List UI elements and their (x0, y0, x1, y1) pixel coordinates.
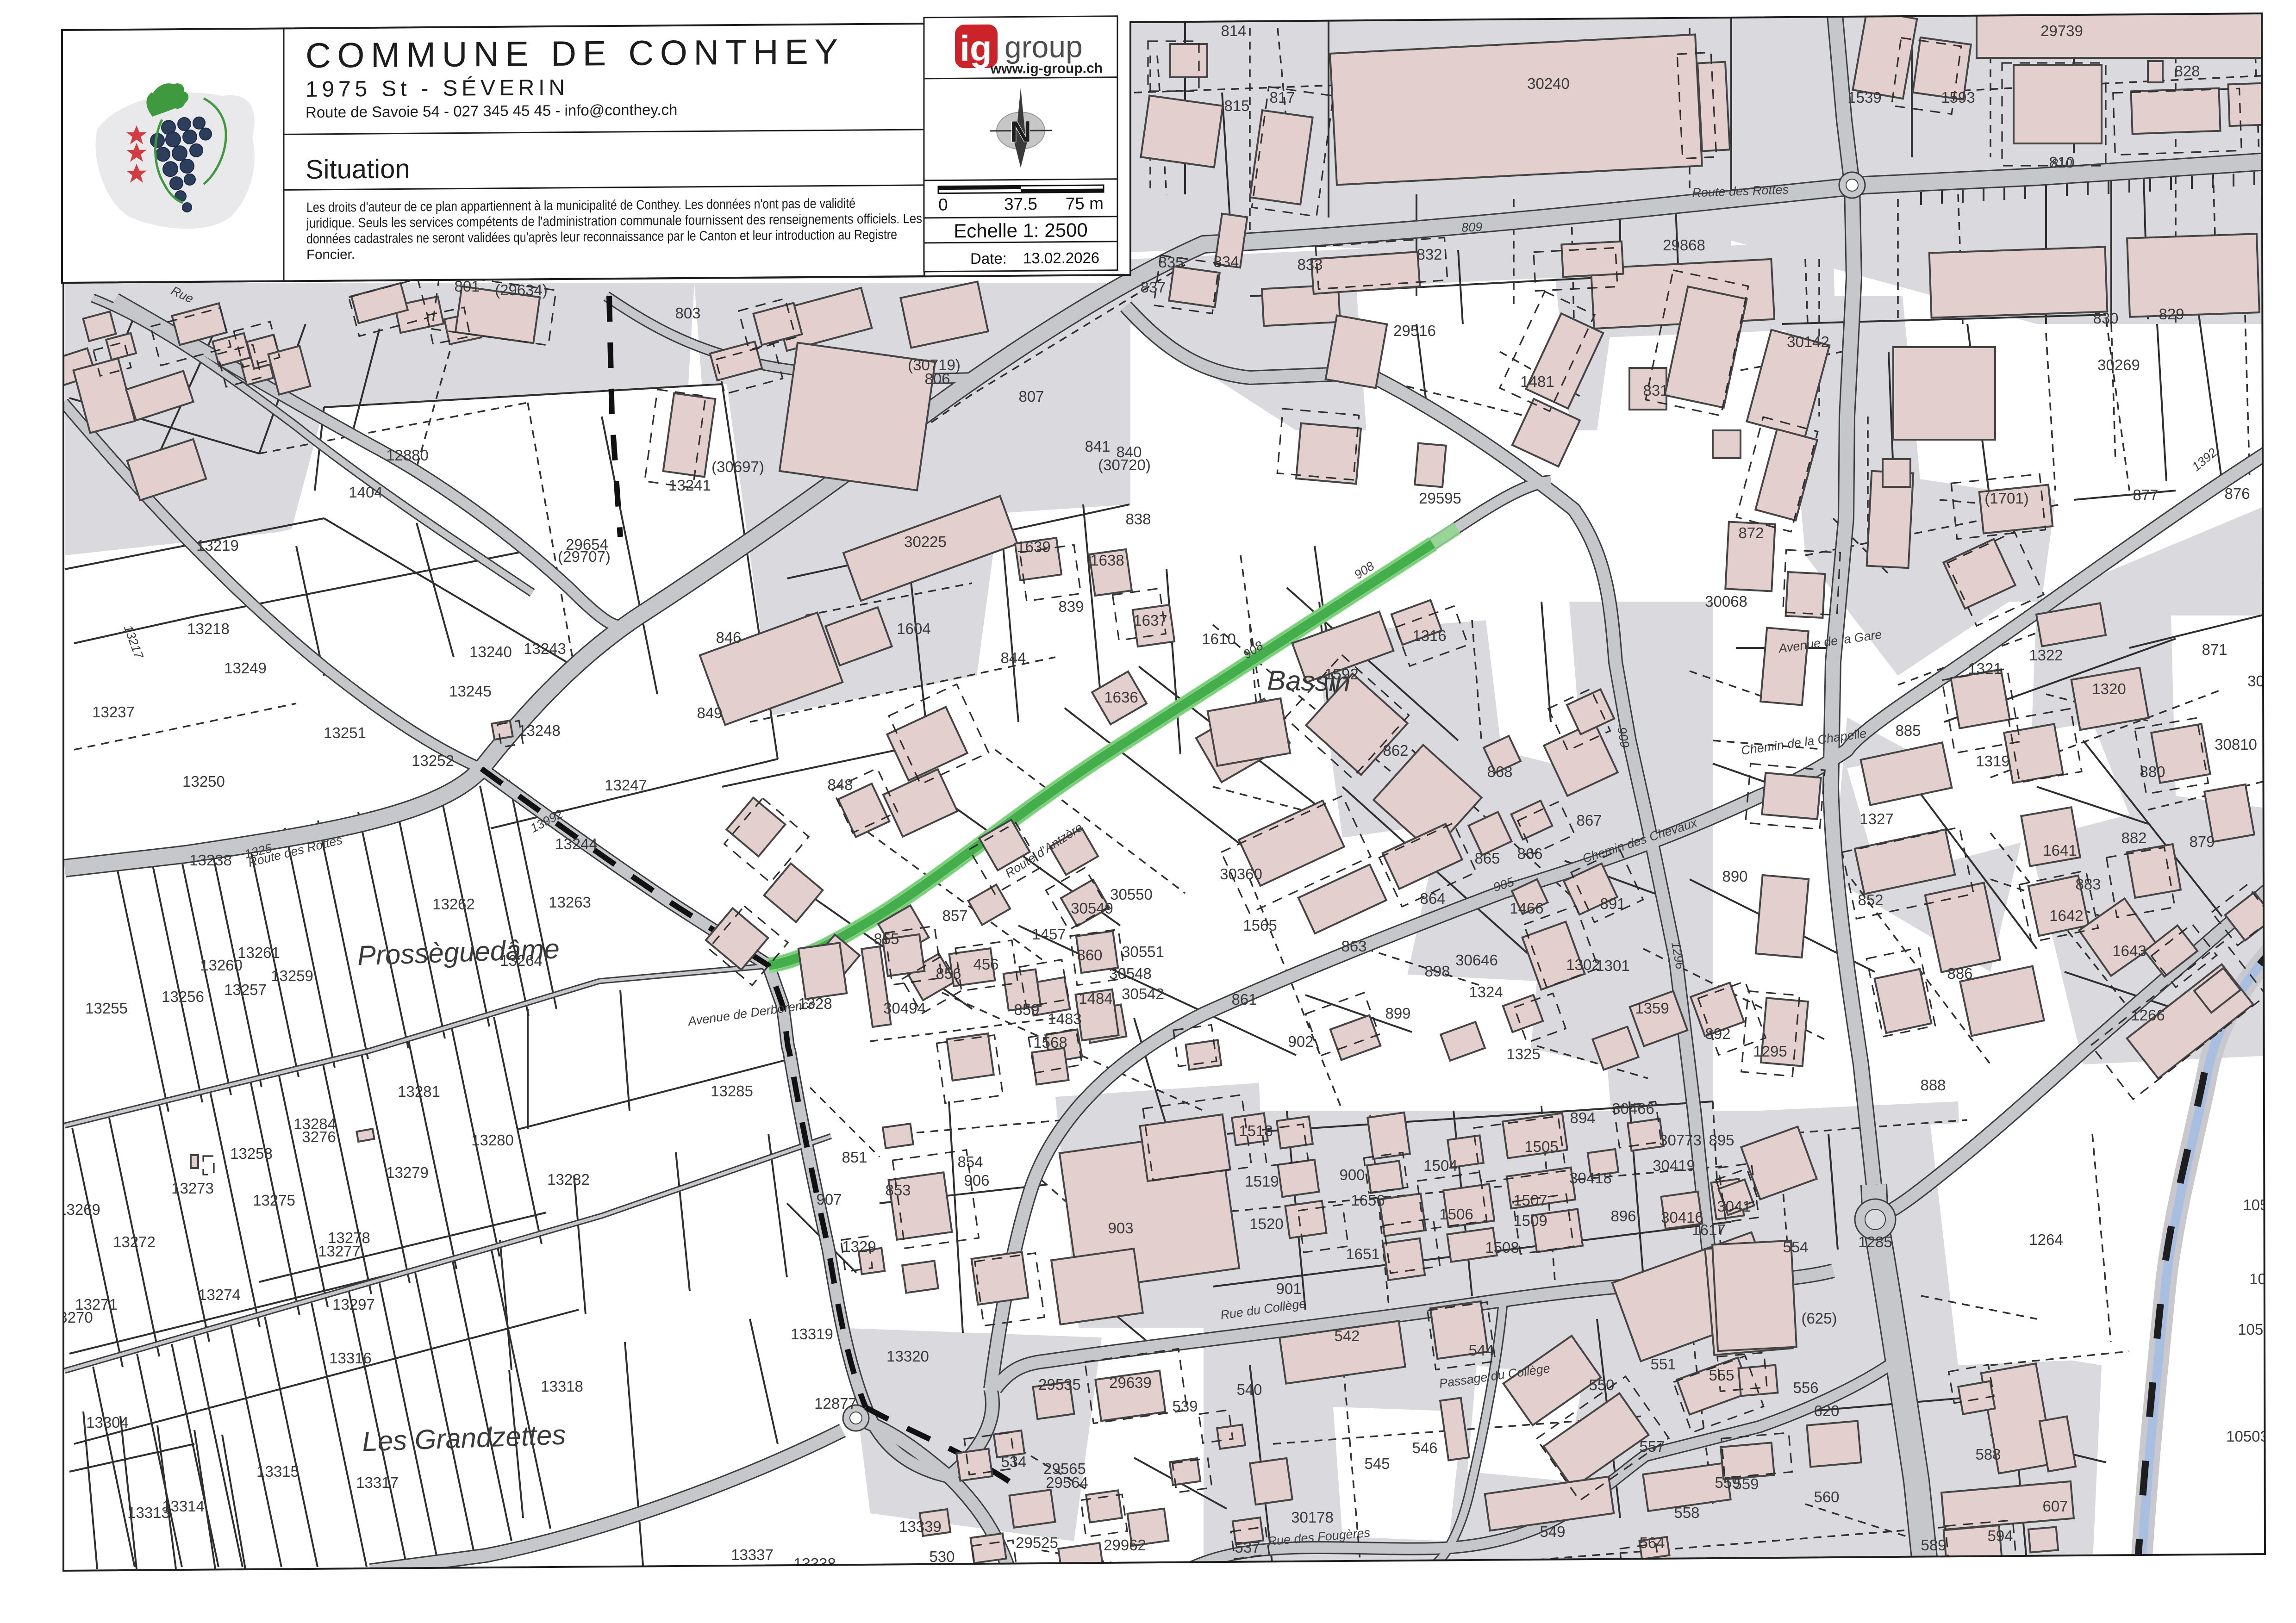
svg-text:13339: 13339 (899, 1518, 942, 1535)
svg-text:1325: 1325 (1506, 1045, 1540, 1063)
svg-text:30542: 30542 (1122, 985, 1164, 1002)
svg-text:857: 857 (942, 907, 967, 924)
svg-text:1324: 1324 (1469, 983, 1503, 1001)
svg-text:892: 892 (1705, 1025, 1730, 1042)
svg-text:13219: 13219 (196, 537, 239, 554)
svg-text:29564: 29564 (1046, 1474, 1088, 1491)
svg-text:30549: 30549 (1071, 900, 1113, 917)
svg-text:559: 559 (1733, 1475, 1759, 1492)
svg-text:29525: 29525 (1016, 1534, 1058, 1551)
svg-text:13263: 13263 (549, 894, 591, 911)
svg-text:867: 867 (1576, 812, 1602, 829)
svg-text:1321: 1321 (1968, 660, 2002, 677)
svg-text:29739: 29739 (2040, 22, 2083, 39)
svg-text:861: 861 (1231, 991, 1257, 1008)
svg-text:1641: 1641 (2043, 842, 2077, 859)
svg-text:1319: 1319 (1976, 752, 2009, 770)
svg-text:13320: 13320 (886, 1348, 929, 1365)
svg-text:13281: 13281 (398, 1083, 440, 1100)
svg-text:13282: 13282 (547, 1171, 590, 1188)
svg-text:838: 838 (1125, 510, 1151, 528)
svg-text:1518: 1518 (1239, 1122, 1273, 1139)
svg-text:1483: 1483 (1048, 1010, 1081, 1027)
svg-text:30550: 30550 (1110, 886, 1153, 903)
svg-text:13241: 13241 (668, 477, 711, 494)
svg-text:1610: 1610 (1202, 630, 1235, 647)
svg-text:Situation: Situation (306, 154, 410, 185)
svg-text:859: 859 (1014, 1001, 1039, 1018)
svg-text:817: 817 (1269, 89, 1295, 106)
svg-text:29535: 29535 (1038, 1376, 1081, 1393)
svg-text:29962: 29962 (1104, 1536, 1146, 1554)
svg-text:13280: 13280 (471, 1132, 514, 1149)
svg-text:(29634): (29634) (495, 281, 548, 298)
svg-text:530: 530 (929, 1548, 955, 1565)
svg-text:546: 546 (1412, 1439, 1437, 1456)
svg-text:902: 902 (1288, 1033, 1313, 1050)
svg-text:3276: 3276 (302, 1128, 336, 1145)
svg-text:545: 545 (1364, 1455, 1390, 1472)
svg-text:12880: 12880 (386, 447, 429, 464)
svg-text:30068: 30068 (1705, 593, 1747, 610)
svg-text:30646: 30646 (1455, 951, 1498, 969)
svg-text:1316: 1316 (1412, 627, 1446, 644)
svg-text:30551: 30551 (1122, 943, 1164, 960)
svg-text:1565: 1565 (1243, 917, 1277, 934)
svg-text:30360: 30360 (1220, 865, 1262, 883)
svg-text:589: 589 (1921, 1536, 1946, 1554)
svg-text:544: 544 (1468, 1342, 1494, 1359)
svg-text:1519: 1519 (1245, 1173, 1279, 1190)
svg-text:594: 594 (1987, 1527, 2013, 1544)
svg-text:828: 828 (2174, 62, 2200, 80)
svg-text:75 m: 75 m (1066, 194, 1104, 213)
svg-text:ig: ig (960, 28, 992, 69)
svg-text:882: 882 (2121, 829, 2146, 846)
svg-text:13258: 13258 (230, 1145, 273, 1162)
svg-text:854: 854 (957, 1153, 983, 1170)
svg-text:555: 555 (1709, 1367, 1734, 1384)
svg-text:549: 549 (1540, 1523, 1565, 1540)
svg-text:13243: 13243 (524, 640, 566, 657)
svg-text:810: 810 (2051, 156, 2072, 171)
svg-text:1617: 1617 (1691, 1221, 1725, 1238)
svg-text:829: 829 (2159, 305, 2184, 323)
svg-text:815: 815 (1224, 97, 1249, 114)
svg-text:837: 837 (1140, 279, 1166, 296)
svg-text:N: N (1010, 115, 1031, 148)
svg-text:890: 890 (1722, 868, 1747, 885)
svg-text:29516: 29516 (1393, 322, 1436, 339)
svg-text:1508: 1508 (1485, 1239, 1519, 1256)
svg-text:1327: 1327 (1859, 810, 1893, 827)
svg-text:564: 564 (1639, 1534, 1665, 1551)
svg-text:13218: 13218 (187, 620, 230, 637)
svg-text:863: 863 (1341, 938, 1366, 955)
svg-text:620: 620 (1814, 1402, 1839, 1419)
svg-text:1643: 1643 (2112, 942, 2146, 959)
svg-text:856: 856 (936, 965, 961, 982)
svg-text:806: 806 (924, 370, 950, 387)
svg-text:13304: 13304 (86, 1414, 129, 1431)
svg-text:13251: 13251 (324, 724, 366, 741)
svg-text:1484: 1484 (1079, 990, 1112, 1007)
svg-text:556: 556 (1793, 1379, 1818, 1396)
svg-text:877: 877 (2133, 486, 2158, 504)
svg-text:848: 848 (827, 776, 853, 793)
svg-text:1302: 1302 (1566, 956, 1600, 973)
svg-text:13279: 13279 (386, 1164, 429, 1181)
svg-text:13262: 13262 (432, 895, 475, 913)
svg-text:13255: 13255 (85, 1000, 128, 1017)
svg-text:13252: 13252 (412, 752, 454, 769)
svg-text:554: 554 (1783, 1238, 1808, 1256)
svg-text:30418: 30418 (1569, 1169, 1612, 1187)
svg-text:1285: 1285 (1858, 1233, 1892, 1250)
svg-text:(29707): (29707) (558, 548, 611, 565)
svg-text:1359: 1359 (1635, 1000, 1669, 1017)
svg-text:1320: 1320 (2092, 680, 2126, 697)
svg-text:860: 860 (1077, 946, 1102, 964)
svg-text:607: 607 (2042, 1498, 2068, 1515)
svg-text:1539: 1539 (1847, 89, 1881, 106)
svg-text:30419: 30419 (1653, 1157, 1695, 1174)
svg-text:3041: 3041 (1717, 1198, 1751, 1215)
svg-text:1404: 1404 (349, 484, 382, 501)
svg-text:809: 809 (1461, 220, 1483, 235)
svg-text:550: 550 (1589, 1376, 1614, 1393)
svg-text:885: 885 (1895, 722, 1921, 739)
svg-text:852: 852 (1858, 891, 1883, 908)
svg-text:1642: 1642 (2049, 907, 2083, 924)
svg-text:13237: 13237 (92, 703, 135, 721)
svg-text:907: 907 (816, 1191, 842, 1208)
svg-text:903: 903 (1108, 1219, 1133, 1237)
svg-text:876: 876 (2224, 485, 2250, 502)
svg-text:588: 588 (1975, 1446, 2001, 1463)
svg-text:534: 534 (1001, 1453, 1026, 1470)
svg-text:891: 891 (1600, 895, 1625, 912)
svg-text:1466: 1466 (1510, 900, 1543, 917)
svg-text:13244: 13244 (555, 835, 598, 852)
svg-text:835: 835 (1158, 254, 1184, 271)
svg-text:901: 901 (1276, 1280, 1301, 1297)
svg-text:888: 888 (1920, 1076, 1946, 1094)
svg-text:883: 883 (2075, 876, 2101, 893)
svg-text:839: 839 (1058, 598, 1084, 615)
svg-text:1295: 1295 (1753, 1043, 1787, 1060)
svg-text:853: 853 (885, 1181, 911, 1199)
svg-text:29868: 29868 (1663, 236, 1705, 254)
svg-text:13274: 13274 (198, 1286, 241, 1303)
svg-text:29639: 29639 (1109, 1374, 1152, 1391)
svg-text:832: 832 (1416, 246, 1442, 263)
svg-text:13272: 13272 (113, 1233, 156, 1250)
svg-text:456: 456 (973, 956, 998, 973)
svg-text:37.5: 37.5 (1004, 194, 1037, 214)
svg-text:851: 851 (842, 1149, 867, 1166)
svg-text:13317: 13317 (356, 1474, 399, 1491)
svg-text:13316: 13316 (329, 1349, 372, 1367)
svg-text:13.02.2026: 13.02.2026 (1023, 249, 1099, 267)
svg-text:13250: 13250 (182, 773, 225, 790)
svg-text:10503: 10503 (2226, 1428, 2269, 1445)
svg-text:542: 542 (1334, 1327, 1360, 1344)
svg-text:Echelle 1: 2500: Echelle 1: 2500 (954, 219, 1088, 242)
svg-text:13275: 13275 (253, 1192, 295, 1209)
svg-text:13285: 13285 (711, 1082, 753, 1100)
svg-text:30240: 30240 (1527, 75, 1570, 92)
svg-text:(1701): (1701) (1984, 490, 2028, 507)
svg-text:830: 830 (2093, 310, 2118, 327)
svg-text:1639: 1639 (1017, 538, 1050, 555)
svg-text:831: 831 (1643, 382, 1668, 399)
svg-text:30466: 30466 (1612, 1100, 1654, 1117)
svg-text:807: 807 (1018, 388, 1044, 405)
svg-text:1505: 1505 (1524, 1138, 1558, 1155)
svg-text:13319: 13319 (791, 1325, 833, 1343)
svg-text:13238: 13238 (189, 852, 232, 869)
svg-text:13240: 13240 (469, 643, 512, 660)
svg-text:13337: 13337 (731, 1546, 774, 1563)
svg-text:29595: 29595 (1419, 490, 1461, 507)
svg-text:1637: 1637 (1133, 612, 1167, 629)
svg-text:855: 855 (873, 930, 899, 947)
svg-text:834: 834 (1213, 253, 1239, 270)
svg-text:13260: 13260 (200, 957, 243, 974)
svg-text:Route de Savoie 54 - 027 345 4: Route de Savoie 54 - 027 345 45 45 - inf… (306, 101, 677, 121)
svg-text:1604: 1604 (897, 620, 930, 637)
svg-text:879: 879 (2189, 833, 2215, 850)
svg-text:537: 537 (1235, 1539, 1260, 1556)
svg-text:1504: 1504 (1423, 1157, 1457, 1174)
svg-text:30773: 30773 (1659, 1132, 1702, 1149)
svg-text:30810: 30810 (2215, 736, 2257, 753)
svg-text:13318: 13318 (541, 1378, 583, 1395)
svg-text:1656: 1656 (1351, 1192, 1385, 1209)
svg-text:841: 841 (1085, 438, 1110, 455)
svg-text:864: 864 (1420, 890, 1445, 907)
svg-text:899: 899 (1385, 1005, 1410, 1022)
svg-text:13248: 13248 (518, 722, 561, 739)
svg-text:896: 896 (1610, 1207, 1636, 1225)
svg-text:30225: 30225 (904, 533, 947, 550)
svg-text:906: 906 (964, 1172, 989, 1189)
svg-text:1636: 1636 (1104, 689, 1138, 706)
svg-text:872: 872 (1738, 524, 1764, 541)
svg-text:1568: 1568 (1033, 1034, 1067, 1051)
svg-text:846: 846 (716, 629, 741, 646)
svg-text:1507: 1507 (1513, 1192, 1547, 1209)
svg-text:1651: 1651 (1346, 1245, 1379, 1262)
svg-text:13247: 13247 (605, 777, 647, 794)
svg-text:1593: 1593 (1941, 89, 1975, 106)
svg-text:Date:: Date: (970, 250, 1007, 267)
svg-text:1457: 1457 (1032, 926, 1066, 943)
svg-text:(625): (625) (1801, 1310, 1837, 1327)
svg-text:13273: 13273 (171, 1180, 214, 1197)
svg-text:1506: 1506 (1439, 1206, 1473, 1223)
svg-text:1975 St - SÉVERIN: 1975 St - SÉVERIN (306, 75, 565, 102)
svg-text:558: 558 (1674, 1504, 1699, 1521)
svg-text:868: 868 (1487, 763, 1512, 780)
svg-text:803: 803 (675, 305, 700, 322)
svg-text:1481: 1481 (1520, 373, 1554, 390)
svg-text:849: 849 (697, 704, 722, 721)
svg-text:540: 540 (1236, 1381, 1262, 1398)
svg-text:1329: 1329 (842, 1238, 876, 1255)
svg-text:13249: 13249 (224, 659, 267, 677)
svg-text:844: 844 (1000, 649, 1026, 666)
svg-text:551: 551 (1650, 1356, 1676, 1373)
svg-text:1266: 1266 (2131, 1007, 2165, 1024)
svg-text:13314: 13314 (162, 1498, 205, 1515)
svg-text:13261: 13261 (237, 944, 280, 961)
svg-text:www.ig-group.ch: www.ig-group.ch (990, 61, 1103, 77)
svg-text:1322: 1322 (2029, 647, 2063, 664)
svg-text:30494: 30494 (883, 1000, 926, 1017)
svg-text:1509: 1509 (1513, 1212, 1547, 1229)
svg-text:898: 898 (1424, 963, 1450, 980)
svg-text:30548: 30548 (1109, 965, 1152, 982)
svg-text:13245: 13245 (449, 683, 492, 700)
svg-text:895: 895 (1709, 1132, 1734, 1149)
svg-text:Bassin: Bassin (1267, 665, 1351, 697)
svg-text:865: 865 (1474, 850, 1500, 867)
svg-text:13257: 13257 (224, 981, 267, 998)
svg-text:30178: 30178 (1291, 1509, 1334, 1526)
svg-text:900: 900 (1339, 1166, 1365, 1183)
svg-text:871: 871 (2202, 641, 2227, 658)
svg-text:886: 886 (1947, 965, 1972, 982)
svg-text:(30720): (30720) (1098, 456, 1151, 473)
svg-text:group: group (1004, 29, 1083, 64)
svg-text:0: 0 (938, 195, 948, 214)
svg-text:13315: 13315 (256, 1463, 299, 1480)
svg-text:862: 862 (1383, 742, 1408, 759)
svg-text:557: 557 (1639, 1438, 1665, 1455)
svg-text:560: 560 (1814, 1488, 1839, 1505)
svg-text:894: 894 (1570, 1109, 1595, 1126)
svg-text:1264: 1264 (2029, 1231, 2063, 1248)
svg-text:1301: 1301 (1596, 957, 1629, 974)
svg-text:Foncier.: Foncier. (306, 247, 355, 262)
svg-text:COMMUNE DE CONTHEY: COMMUNE DE CONTHEY (306, 32, 838, 75)
svg-text:539: 539 (1172, 1398, 1198, 1415)
svg-text:866: 866 (1517, 845, 1542, 862)
svg-text:1520: 1520 (1249, 1215, 1283, 1232)
svg-text:30142: 30142 (1787, 333, 1829, 350)
svg-text:12877: 12877 (814, 1395, 857, 1412)
svg-text:13277: 13277 (318, 1243, 361, 1260)
svg-text:13259: 13259 (271, 967, 313, 984)
svg-text:30269: 30269 (2097, 356, 2140, 373)
svg-text:13256: 13256 (162, 988, 204, 1005)
svg-text:833: 833 (1297, 256, 1323, 273)
svg-text:13297: 13297 (332, 1296, 375, 1313)
svg-text:(30697): (30697) (711, 458, 764, 475)
svg-text:1638: 1638 (1090, 552, 1124, 569)
svg-text:814: 814 (1221, 22, 1246, 39)
svg-text:880: 880 (2140, 763, 2165, 780)
